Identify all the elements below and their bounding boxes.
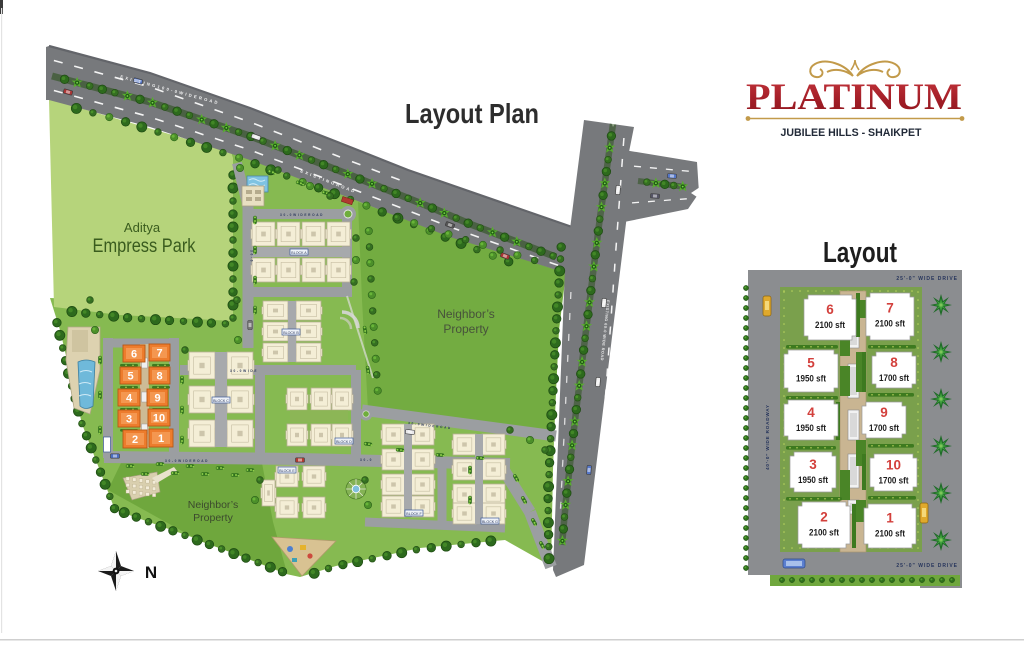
svg-text:BLOCK E: BLOCK E	[279, 469, 295, 473]
svg-text:3 0 - 0 W I D E R O A D: 3 0 - 0 W I D E R O A D	[280, 213, 323, 217]
svg-text:Aditya: Aditya	[124, 220, 161, 235]
svg-text:1950 sft: 1950 sft	[798, 475, 829, 486]
svg-text:3: 3	[126, 414, 132, 426]
svg-text:BLOCK C: BLOCK C	[213, 399, 229, 403]
svg-text:3 0 - 0: 3 0 - 0	[250, 250, 254, 262]
svg-text:Neighbor’s: Neighbor’s	[437, 307, 495, 321]
svg-text:1: 1	[886, 510, 894, 525]
svg-text:1700 sft: 1700 sft	[879, 373, 910, 384]
svg-text:1700 sft: 1700 sft	[869, 423, 900, 434]
svg-text:8: 8	[156, 371, 162, 383]
svg-text:40'-0" WIDE ROADWAY: 40'-0" WIDE ROADWAY	[765, 404, 770, 470]
svg-text:BLOCK D: BLOCK D	[336, 440, 352, 444]
svg-text:25'-0" WIDE DRIVE: 25'-0" WIDE DRIVE	[896, 563, 958, 569]
svg-text:2100 sft: 2100 sft	[875, 528, 906, 539]
svg-text:JUBILEE HILLS - SHAIKPET: JUBILEE HILLS - SHAIKPET	[781, 127, 922, 139]
svg-text:Neighbor’s: Neighbor’s	[188, 499, 238, 511]
svg-text:3 0 - 0 W I D E: 3 0 - 0 W I D E	[230, 369, 257, 373]
svg-text:5: 5	[127, 371, 133, 383]
svg-text:3 0 - 0: 3 0 - 0	[360, 458, 372, 462]
svg-text:10: 10	[886, 458, 901, 473]
svg-text:Property: Property	[193, 512, 233, 524]
svg-text:10: 10	[153, 413, 165, 425]
svg-text:2: 2	[820, 509, 828, 524]
svg-text:6: 6	[826, 302, 834, 317]
svg-text:25'-0" WIDE DRIVE: 25'-0" WIDE DRIVE	[896, 276, 958, 282]
svg-text:BLOCK A: BLOCK A	[291, 251, 307, 255]
svg-text:9: 9	[880, 405, 888, 420]
svg-text:3: 3	[809, 457, 817, 472]
svg-text:1: 1	[158, 433, 164, 445]
svg-text:7: 7	[156, 348, 162, 360]
svg-text:4: 4	[126, 393, 133, 405]
svg-text:4: 4	[807, 405, 815, 420]
svg-text:2100 sft: 2100 sft	[809, 527, 840, 538]
svg-text:5: 5	[807, 356, 815, 371]
svg-text:Property: Property	[443, 322, 488, 336]
svg-text:BLOCK G: BLOCK G	[482, 520, 498, 524]
svg-text:Layout: Layout	[823, 237, 897, 269]
svg-text:BLOCK B: BLOCK B	[283, 331, 299, 335]
svg-text:PLATINUM: PLATINUM	[746, 77, 962, 118]
svg-text:BLOCK F: BLOCK F	[406, 512, 422, 516]
svg-text:7: 7	[886, 301, 894, 316]
svg-text:1950 sft: 1950 sft	[796, 374, 827, 385]
svg-text:3 0 - 0 W I D E R O A D: 3 0 - 0 W I D E R O A D	[165, 459, 208, 463]
svg-text:2: 2	[132, 434, 138, 446]
svg-text:Empress Park: Empress Park	[93, 236, 196, 257]
svg-text:2100 sft: 2100 sft	[815, 320, 846, 331]
svg-text:8: 8	[890, 355, 898, 370]
svg-text:2100 sft: 2100 sft	[875, 319, 906, 330]
svg-text:9: 9	[154, 393, 160, 405]
svg-text:Layout Plan: Layout Plan	[405, 98, 539, 129]
svg-text:1700 sft: 1700 sft	[879, 476, 910, 487]
svg-text:1950 sft: 1950 sft	[796, 423, 827, 434]
svg-text:N: N	[145, 563, 157, 582]
svg-text:6: 6	[131, 349, 137, 361]
